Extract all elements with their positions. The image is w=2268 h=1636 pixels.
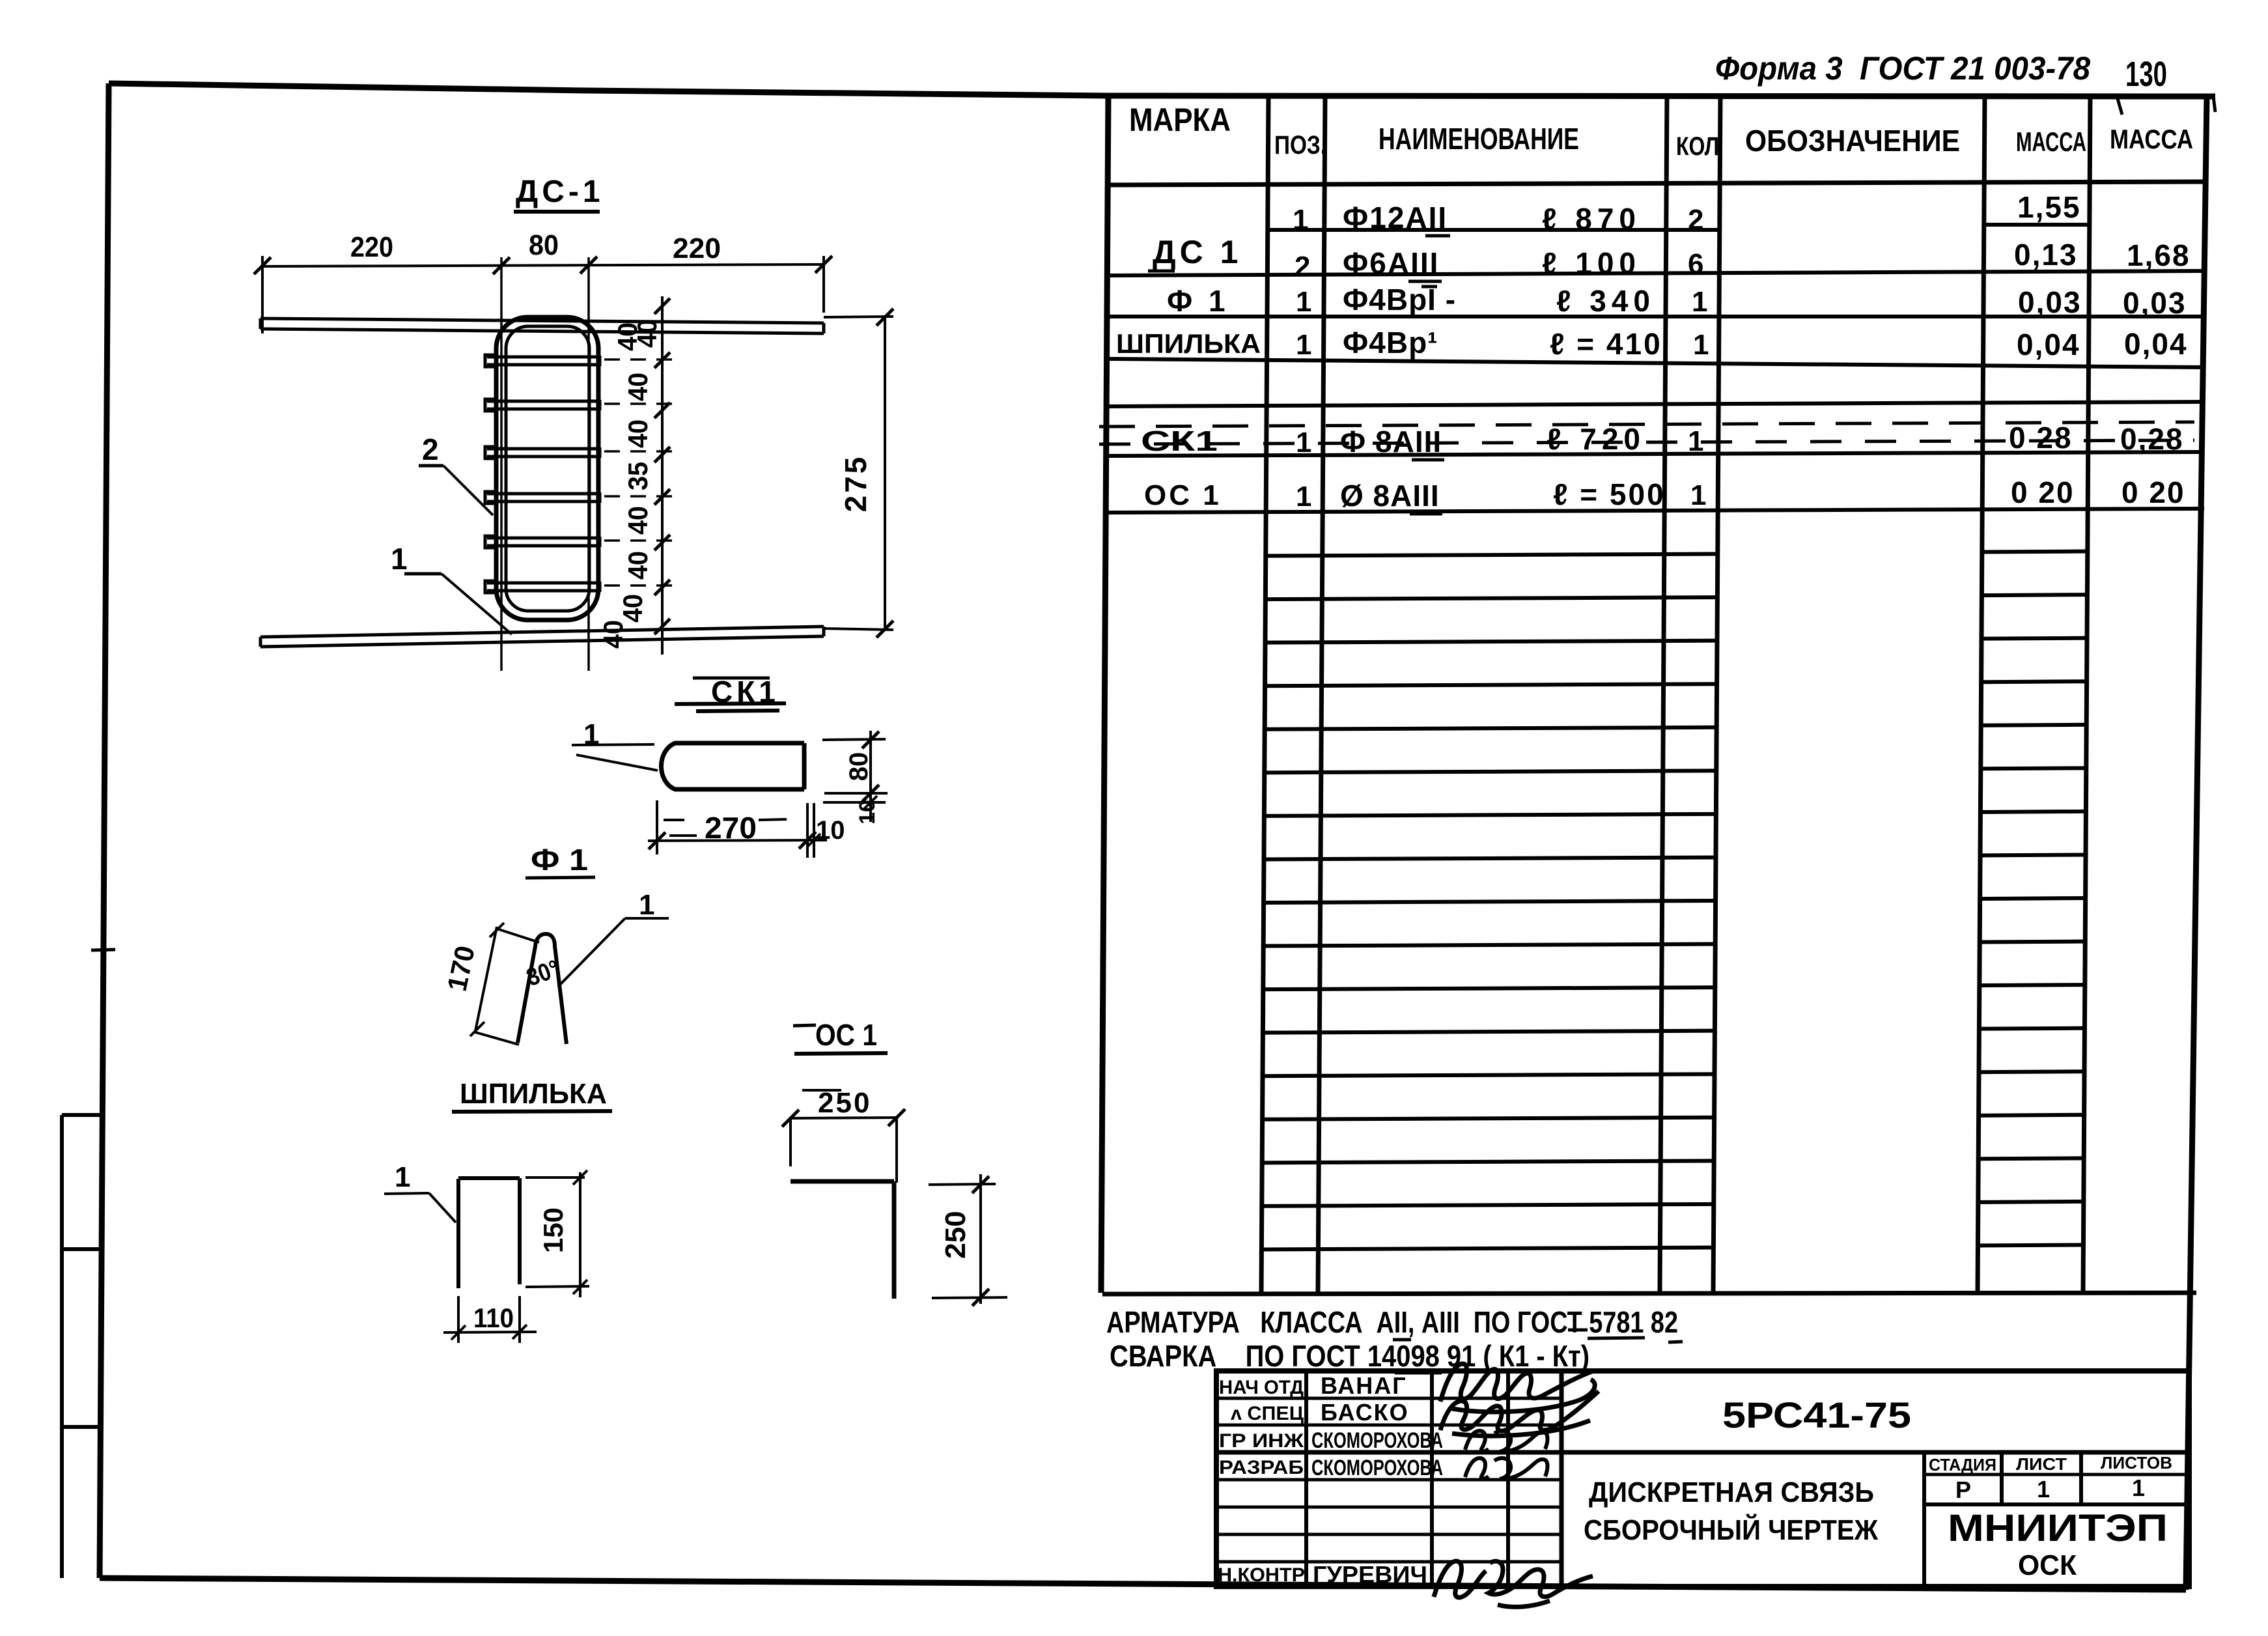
svg-text:250: 250 [940,1211,972,1258]
svg-text:ℓ = 410: ℓ = 410 [1550,327,1662,361]
svg-text:ОС 1: ОС 1 [815,1018,877,1052]
svg-text:1,68: 1,68 [2127,238,2191,272]
svg-text:80: 80 [845,752,873,782]
svg-text:150: 150 [538,1207,568,1253]
svg-text:0,03: 0,03 [2018,285,2082,319]
svg-text:1: 1 [395,1161,410,1193]
svg-text:0,04: 0,04 [2124,327,2188,361]
svg-text:10: 10 [855,800,880,825]
svg-text:2: 2 [1688,204,1703,236]
svg-text:130: 130 [2125,55,2167,94]
svg-text:ОСК: ОСК [2018,1549,2077,1581]
svg-text:220: 220 [673,233,721,264]
svg-text:ГУРЕВИЧ: ГУРЕВИЧ [1313,1561,1427,1588]
svg-text:Н.КОНТР: Н.КОНТР [1218,1564,1305,1586]
svg-text:1: 1 [1690,479,1706,511]
svg-text:Ф 1: Ф 1 [531,843,588,877]
svg-text:1: 1 [1296,427,1311,458]
svg-text:СВАРКА ПО ГОСТ 14098 91 ( К: СВАРКА ПО ГОСТ 14098 91 ( К1 - Кт) [1110,1339,1589,1373]
svg-text:1: 1 [639,889,654,921]
svg-text:ℓ = 500: ℓ = 500 [1553,477,1666,511]
svg-text:Р: Р [1955,1476,1971,1503]
svg-text:1: 1 [1693,329,1709,361]
svg-text:Ø 8АIII: Ø 8АIII [1340,479,1440,513]
svg-text:40: 40 [623,373,653,401]
svg-text:СБОРОЧНЫЙ ЧЕРТЕЖ: СБОРОЧНЫЙ ЧЕРТЕЖ [1584,1513,1878,1546]
svg-text:2: 2 [1295,251,1310,283]
svg-text:1: 1 [2037,1476,2050,1502]
svg-text:1: 1 [1296,481,1311,513]
svg-text:ЛИСТ: ЛИСТ [2016,1454,2067,1474]
svg-text:220: 220 [350,231,393,263]
svg-text:275: 275 [839,455,873,513]
svg-text:40: 40 [598,620,628,649]
svg-text:ℓ 720: ℓ 720 [1547,422,1645,456]
svg-text:2: 2 [422,432,439,466]
svg-text:1: 1 [391,542,408,576]
svg-text:270: 270 [705,811,757,845]
svg-text:ГР ИНЖ: ГР ИНЖ [1219,1430,1304,1452]
svg-text:80: 80 [529,229,559,261]
svg-text:СК1: СК1 [1141,425,1218,457]
svg-text:1: 1 [1692,286,1707,318]
svg-text:ШПИЛЬКА: ШПИЛЬКА [460,1078,607,1110]
svg-text:ВАНАГ: ВАНАГ [1321,1372,1407,1399]
svg-text:БАСКО: БАСКО [1321,1399,1409,1426]
svg-text:0,04: 0,04 [2017,328,2080,361]
svg-text:110: 110 [473,1303,514,1333]
svg-text:35: 35 [623,462,653,490]
svg-text:АРМАТУРА КЛАССА АII, АIII: АРМАТУРА КЛАССА АII, АIII ПО ГОСТ 5781 8… [1106,1305,1678,1339]
svg-text:1,55: 1,55 [2017,190,2081,224]
svg-text:ДИСКРЕТНАЯ СВЯЗЬ: ДИСКРЕТНАЯ СВЯЗЬ [1589,1476,1874,1508]
svg-text:6: 6 [1688,248,1703,280]
svg-text:5РС41-75: 5РС41-75 [1722,1394,1911,1435]
svg-text:40: 40 [623,551,653,580]
svg-text:ʌ СПЕЦ: ʌ СПЕЦ [1231,1403,1304,1424]
svg-text:0 20: 0 20 [2121,475,2185,509]
svg-text:НАИМЕНОВАНИЕ: НАИМЕНОВАНИЕ [1379,122,1579,156]
svg-text:Ф6АIII: Ф6АIII [1343,246,1439,280]
svg-text:МАССА: МАССА [2110,124,2193,154]
svg-text:1: 1 [1296,329,1311,361]
svg-text:Ф 1: Ф 1 [1167,284,1229,318]
svg-text:МАССА: МАССА [2016,126,2086,157]
svg-text:СКОМОРОХОВА: СКОМОРОХОВА [1311,1456,1443,1480]
svg-text:0 28: 0 28 [2009,421,2073,455]
svg-text:ℓ 340: ℓ 340 [1556,284,1655,318]
svg-text:СКОМОРОХОВА: СКОМОРОХОВА [1311,1428,1443,1453]
svg-text:Ф4ВрI -: Ф4ВрI - [1343,283,1456,317]
svg-text:РАЗРАБ: РАЗРАБ [1219,1457,1304,1478]
svg-text:250: 250 [818,1087,871,1119]
svg-text:КОЛ: КОЛ [1676,132,1719,161]
svg-text:ДС-1: ДС-1 [516,175,604,209]
svg-text:40: 40 [617,594,648,623]
svg-text:ЛИСТОВ: ЛИСТОВ [2101,1453,2172,1473]
svg-text:0,03: 0,03 [2123,286,2187,320]
svg-text:ПОЗ.: ПОЗ. [1274,131,1326,160]
svg-text:ℓ 100: ℓ 100 [1542,246,1641,280]
svg-text:1: 1 [2132,1474,2145,1501]
svg-text:40: 40 [632,319,662,348]
svg-text:0,13: 0,13 [2014,238,2078,272]
svg-text:Форма 3 ГОСТ 21 003-78: Форма 3 ГОСТ 21 003-78 [1715,50,2090,87]
svg-text:ШПИЛЬКА: ШПИЛЬКА [1116,328,1261,359]
svg-text:0 20: 0 20 [2011,475,2075,509]
svg-text:40: 40 [623,506,653,535]
svg-text:40: 40 [623,419,653,448]
svg-text:1: 1 [1296,286,1311,318]
svg-text:ОС 1: ОС 1 [1144,479,1222,511]
svg-text:СТАДИЯ: СТАДИЯ [1929,1455,1996,1474]
svg-text:ДС 1: ДС 1 [1153,234,1242,270]
svg-text:ОБОЗНАЧЕНИЕ: ОБОЗНАЧЕНИЕ [1745,124,1960,158]
svg-text:1: 1 [1293,204,1308,236]
svg-text:НАЧ ОТД: НАЧ ОТД [1219,1377,1304,1398]
svg-text:10: 10 [816,816,845,845]
svg-text:Ф12АII: Ф12АII [1343,201,1448,234]
svg-text:Ф4Вр¹: Ф4Вр¹ [1343,326,1438,360]
svg-text:МАРКА: МАРКА [1129,102,1231,138]
svg-text:ℓ 870: ℓ 870 [1542,202,1641,236]
svg-text:МНИИТЭП: МНИИТЭП [1948,1507,2168,1549]
